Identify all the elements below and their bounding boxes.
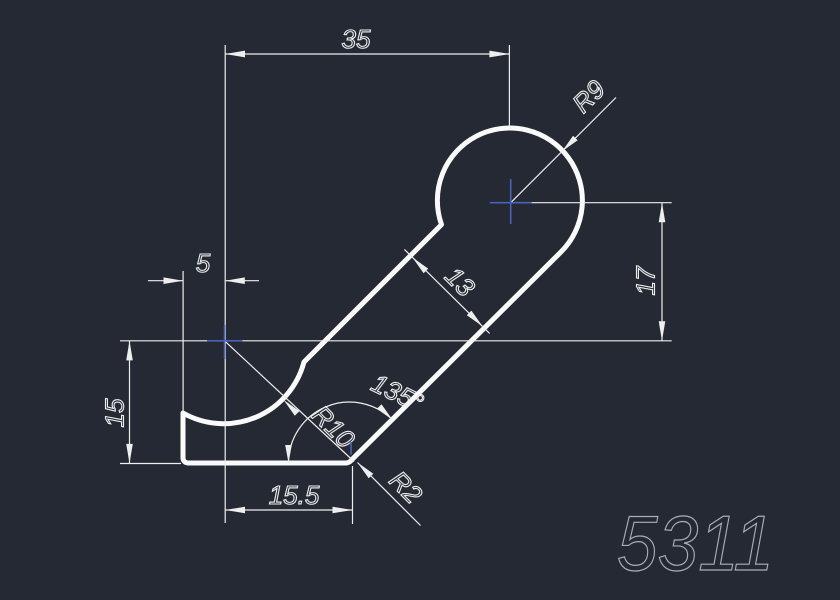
svg-text:17: 17: [631, 265, 661, 295]
svg-text:15.5: 15.5: [269, 480, 320, 510]
svg-text:15: 15: [100, 398, 130, 427]
svg-text:5311: 5311: [617, 499, 774, 587]
svg-text:35: 35: [342, 24, 371, 54]
svg-text:5: 5: [196, 248, 211, 278]
